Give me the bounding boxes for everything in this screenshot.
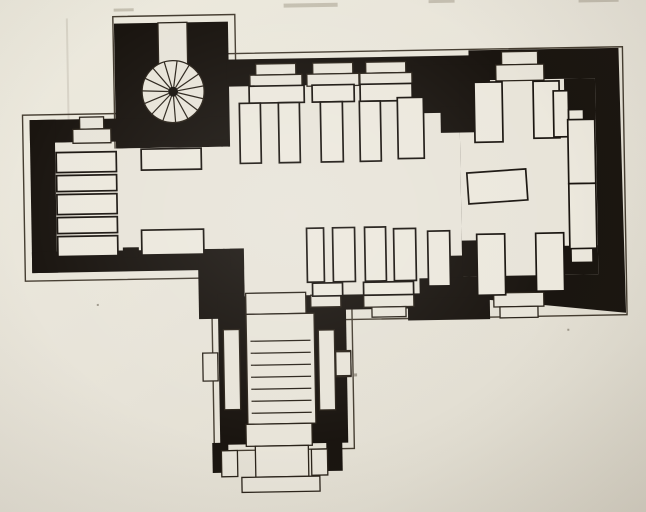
south-pew-back bbox=[363, 281, 413, 295]
window-recess bbox=[313, 62, 353, 74]
cropped-text-mark bbox=[114, 8, 134, 11]
west-bench-row bbox=[56, 152, 116, 173]
box-pew bbox=[428, 231, 451, 286]
entrance-flank-block bbox=[311, 449, 327, 475]
north-pew-back bbox=[249, 85, 304, 103]
window-recess bbox=[366, 62, 406, 74]
scanned-page bbox=[0, 0, 646, 512]
west-door-step bbox=[80, 117, 104, 129]
south-pew-back bbox=[312, 283, 342, 297]
porch-buttress bbox=[326, 441, 343, 471]
entrance-platform-step bbox=[255, 445, 309, 477]
east-wall-bench bbox=[568, 119, 596, 183]
box-pew bbox=[359, 101, 381, 161]
porch-side-bench bbox=[223, 329, 240, 409]
church-floor-plan bbox=[0, 0, 646, 512]
west-bench-row bbox=[57, 175, 117, 192]
crossing-pew bbox=[142, 229, 204, 255]
porch-door-landing bbox=[246, 292, 306, 314]
porch-side-recess bbox=[203, 353, 218, 381]
west-bench-row bbox=[57, 194, 117, 215]
communion-table bbox=[467, 169, 528, 204]
box-pew bbox=[307, 228, 325, 282]
cropped-text-mark bbox=[579, 0, 619, 3]
nave-south-window bbox=[372, 307, 406, 318]
west-arm-west-wall bbox=[30, 120, 59, 273]
chancel-corner-seat bbox=[553, 91, 569, 137]
box-pew bbox=[394, 228, 417, 280]
chancel-south-window bbox=[500, 306, 538, 318]
porch-side-bench bbox=[318, 330, 335, 410]
porch-threshold bbox=[246, 423, 312, 446]
entrance-flank-block bbox=[221, 451, 237, 477]
chancel-pew bbox=[474, 82, 503, 142]
chancel-pew bbox=[536, 233, 565, 291]
box-pew bbox=[365, 227, 387, 281]
west-bench-row bbox=[57, 217, 117, 234]
east-wall-bench bbox=[569, 183, 597, 248]
crossing-pew bbox=[141, 148, 201, 170]
paper-speck bbox=[97, 304, 99, 306]
west-door-splay bbox=[73, 129, 111, 144]
west-bench-row bbox=[58, 236, 118, 257]
plan-tilt-group bbox=[21, 0, 630, 496]
cropped-text-mark bbox=[284, 3, 338, 8]
box-pew bbox=[333, 227, 356, 281]
porch-side-recess bbox=[336, 352, 351, 376]
box-pew bbox=[278, 102, 300, 162]
box-pew bbox=[320, 102, 343, 162]
north-pew-back bbox=[312, 84, 354, 102]
chancel-north-window-splay bbox=[496, 64, 544, 81]
window-recess bbox=[256, 63, 296, 75]
paper-speck bbox=[354, 373, 357, 376]
box-pew bbox=[239, 103, 261, 163]
cropped-text-mark bbox=[429, 0, 455, 3]
south-buttress-step bbox=[408, 297, 490, 320]
paper-speck bbox=[567, 329, 569, 331]
chancel-pew bbox=[477, 234, 506, 295]
box-pew bbox=[397, 97, 424, 158]
entrance-platform-base bbox=[242, 476, 320, 492]
chancel-north-window bbox=[501, 51, 537, 65]
crossing-wall-notch bbox=[123, 247, 139, 257]
porch-staircase bbox=[246, 313, 316, 424]
west-arm-north-wall bbox=[30, 117, 230, 143]
